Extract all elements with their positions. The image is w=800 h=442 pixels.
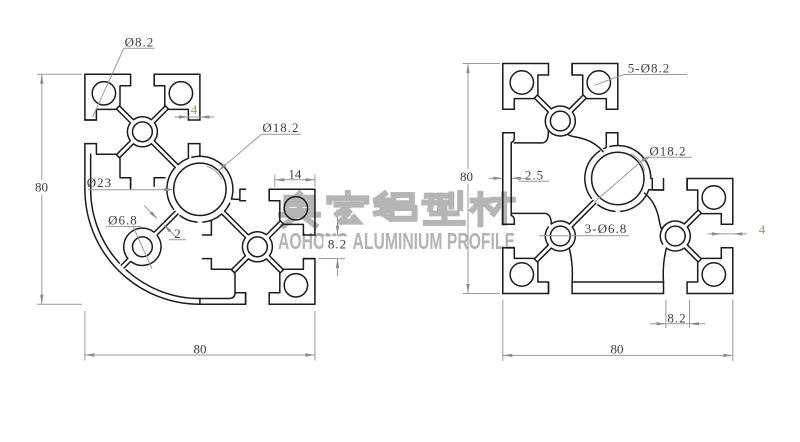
svg-text:8.2: 8.2 [667, 310, 686, 325]
svg-text:Ø18.2: Ø18.2 [649, 144, 686, 159]
svg-text:80: 80 [194, 342, 207, 357]
svg-text:2: 2 [174, 226, 181, 241]
svg-text:14: 14 [288, 166, 302, 181]
svg-text:3-Ø6.8: 3-Ø6.8 [585, 221, 627, 236]
svg-text:80: 80 [611, 342, 624, 357]
svg-text:5-Ø8.2: 5-Ø8.2 [628, 61, 670, 76]
svg-text:80: 80 [35, 180, 48, 195]
svg-text:AOHONG ALUMINIUM PROFILE: AOHONG ALUMINIUM PROFILE [278, 230, 515, 255]
svg-text:Ø23: Ø23 [87, 175, 112, 190]
svg-text:8.2: 8.2 [328, 237, 347, 252]
svg-text:2.5: 2.5 [525, 167, 544, 182]
svg-text:4: 4 [759, 222, 766, 237]
svg-text:Ø6.8: Ø6.8 [108, 213, 138, 228]
svg-text:Ø18.2: Ø18.2 [262, 120, 299, 135]
svg-text:Ø8.2: Ø8.2 [125, 34, 155, 49]
svg-text:4: 4 [191, 102, 198, 117]
svg-text:80: 80 [460, 169, 473, 184]
